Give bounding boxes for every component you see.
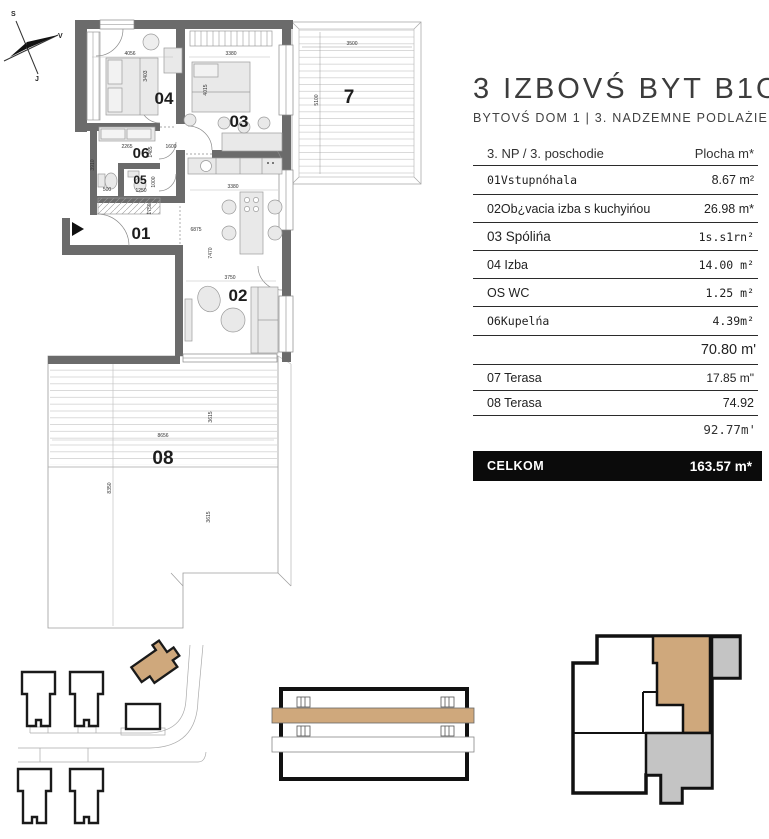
dim-room05-a: 500 [103,187,112,193]
table-header: 3. NP / 3. poschodie Plocha m* [473,142,758,166]
table-row: 07 Terasa 17.85 m" [473,365,758,391]
row-value: 17.85 m" [706,371,758,385]
row-value: 8.67 m² [712,173,758,187]
dim-hall-d: 1750 [147,203,153,214]
room-label-08: 08 [152,448,173,469]
dim-room06-a: 2265 [121,144,132,150]
compass-north-label: S [11,11,16,18]
building-elevation [272,689,474,779]
subtotal-row: 70.80 m' [473,336,758,365]
room-label-03: 03 [230,112,249,131]
row-label: 08 Terasa [473,396,542,410]
dim-room03-h: 4015 [203,84,209,95]
row-label: 04 Izba [473,258,528,272]
compass-rose: S V J [4,11,63,83]
row-label: O6Kupelńa [473,314,549,328]
compass-east-label: V [58,33,63,40]
compass-south-label: J [35,76,39,83]
table-row: 08 Terasa 74.92 [473,391,758,416]
page-subtitle: BYTOVŚ DOM 1 | 3. NADZEMNE PODLAŻIE [473,111,762,125]
terrace-07: 3500 5100 7 [292,22,421,184]
dim-hall-h: 3910 [90,159,96,170]
dim-terr8-h3: 3615 [206,511,212,522]
dim-room04-h: 3403 [143,70,149,81]
table-row: 03 Spólińa 1s.s1rn² [473,223,758,251]
table-header-right: Plocha m* [695,146,758,161]
row-value: 4.39m² [712,314,758,328]
dim-living-w2: 3750 [224,275,235,281]
area-table: 3. NP / 3. poschodie Plocha m* 01Vstupnó… [473,142,758,481]
room-label-05: 05 [133,173,147,187]
page-title: 3 IZBOVŚ BYT B1O [473,74,762,104]
room-label-07: 7 [344,87,355,108]
highlighted-building [128,636,184,689]
row-label: OS WC [473,286,529,300]
room-label-01: 01 [132,224,151,243]
dim-room04-w: 4056 [124,51,135,57]
dim-room06-c: 1600 [165,144,176,150]
site-plan [18,636,206,823]
total-value: 163.57 m* [690,459,762,474]
dim-living-h: 7470 [208,247,214,258]
subtotal-value: 70.80 m' [701,342,758,358]
info-panel: 3 IZBOVŚ BYT B1O BYTOVŚ DOM 1 | 3. NADZE… [473,74,762,481]
dim-terr8-width: 8656 [157,433,168,439]
dim-terr7-width: 3500 [346,41,357,47]
table-row: OS WC 1.25 m² [473,279,758,307]
terrace-08: 8656 3615 8350 3615 08 [48,356,291,628]
row-label: 02Ob¿vacia izba s kuchyińou [473,202,650,216]
entrance-arrow-icon [72,222,84,236]
total-label: CELKOM [473,459,544,473]
dim-terr8-h1: 3615 [208,411,214,422]
row-value: 74.92 [723,396,758,410]
dim-living-w: 6875 [190,227,201,233]
subtotal-row: 92.77m' [473,416,758,443]
row-value: 1.25 m² [706,286,758,300]
key-plan [573,636,740,803]
row-value: 1s.s1rn² [699,230,758,244]
floorplan-sheet: S V J 3500 5100 7 8656 3615 8350 3615 08 [0,0,769,839]
row-label: 03 Spólińa [473,229,551,244]
row-label: 01Vstupnóhala [473,173,577,187]
subtotal-value: 92.77m' [703,422,758,437]
highlighted-floor-band [272,708,474,723]
row-value: 26.98 m* [704,202,758,216]
table-header-left: 3. NP / 3. poschodie [473,146,604,161]
dim-terr8-h2: 8350 [107,482,113,493]
table-row: 02Ob¿vacia izba s kuchyińou 26.98 m* [473,195,758,223]
dim-kitchen-w: 3380 [227,184,238,190]
table-row: 04 Izba 14.00 m² [473,251,758,279]
table-row: 01Vstupnóhala 8.67 m² [473,166,758,195]
room-label-02: 02 [229,286,248,305]
row-value: 14.00 m² [699,258,758,272]
dim-room05-b: 1250 [135,188,146,194]
row-label: 07 Terasa [473,371,542,385]
dim-room03-w: 3380 [225,51,236,57]
table-row: O6Kupelńa 4.39m² [473,307,758,336]
dim-terr7-height: 5100 [314,94,320,105]
dim-room05-c: 1000 [151,176,157,187]
room-label-04: 04 [155,89,174,108]
total-bar: CELKOM 163.57 m* [473,451,762,481]
room-label-06: 06 [133,145,150,162]
